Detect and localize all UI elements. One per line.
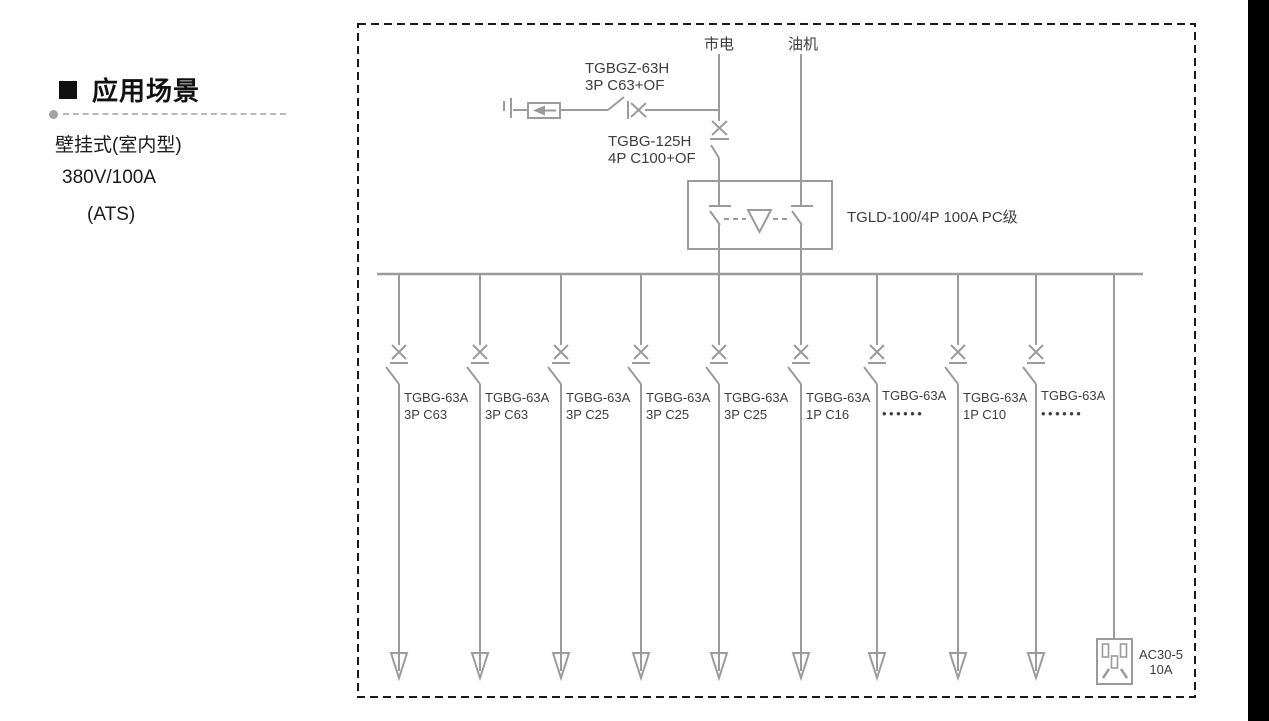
branch-spec-3: 3P C25 [566,407,609,422]
main-breaker-spec: 4P C100+OF [608,150,696,167]
ats-mechanism-icon [748,210,771,232]
branch-model-6: TGBG-63A [806,390,871,405]
branch-circuit-4 [628,274,650,678]
branch-circuit-3 [548,274,570,678]
ats-box [688,181,832,249]
single-line-diagram: 市电 TGBG-125H 4P C100+OF 油机 [0,0,1269,721]
mains-source-label: 市电 [704,36,734,53]
branch-circuit-6 [788,274,810,678]
branch-spec-1: 3P C63 [404,407,447,422]
branch-model-2: TGBG-63A [485,390,550,405]
socket-model: AC30-5 [1139,647,1183,662]
branch-model-5: TGBG-63A [724,390,789,405]
spd-breaker-icon [608,97,646,119]
branch-circuit-5 [706,274,728,678]
diagram-dashed-border [358,24,1195,697]
surge-arrester-icon [528,103,560,118]
branch-spec-8: 1P C10 [963,407,1006,422]
branch-circuit-1 [386,274,408,678]
generator-feeder: 油机 [788,36,818,205]
branch-model-4: TGBG-63A [646,390,711,405]
branch-spec-6: 1P C16 [806,407,849,422]
branch-spec-5: 3P C25 [724,407,767,422]
generator-source-label: 油机 [788,36,818,53]
branch-spec-4: 3P C25 [646,407,689,422]
ats-switch [688,181,832,274]
branch-circuit-9 [1023,274,1045,678]
branch-model-3: TGBG-63A [566,390,631,405]
main-breaker-icon [710,121,729,158]
branch-model-9: TGBG-63A [1041,388,1106,403]
branch-spec-2: 3P C63 [485,407,528,422]
branch-circuit-8 [945,274,967,678]
branch-model-8: TGBG-63A [963,390,1028,405]
socket-rating: 10A [1149,662,1172,677]
branch-spec-7: •••••• [882,406,924,421]
socket-branch [1097,274,1132,684]
spd-breaker-spec: 3P C63+OF [585,77,664,94]
main-breaker-model: TGBG-125H [608,133,691,150]
spd-breaker-model: TGBGZ-63H [585,60,669,77]
ground-icon [504,98,511,118]
branch-circuit-2 [467,274,489,678]
spd-branch [504,97,719,119]
branch-model-1: TGBG-63A [404,390,469,405]
mains-feeder: 市电 [704,36,734,205]
branch-circuit-7 [864,274,886,678]
branch-spec-9: •••••• [1041,406,1083,421]
socket-icon [1097,639,1132,684]
branch-model-7: TGBG-63A [882,388,947,403]
screen-edge-bar [1248,0,1269,721]
ats-label: TGLD-100/4P 100A PC级 [847,209,1018,226]
